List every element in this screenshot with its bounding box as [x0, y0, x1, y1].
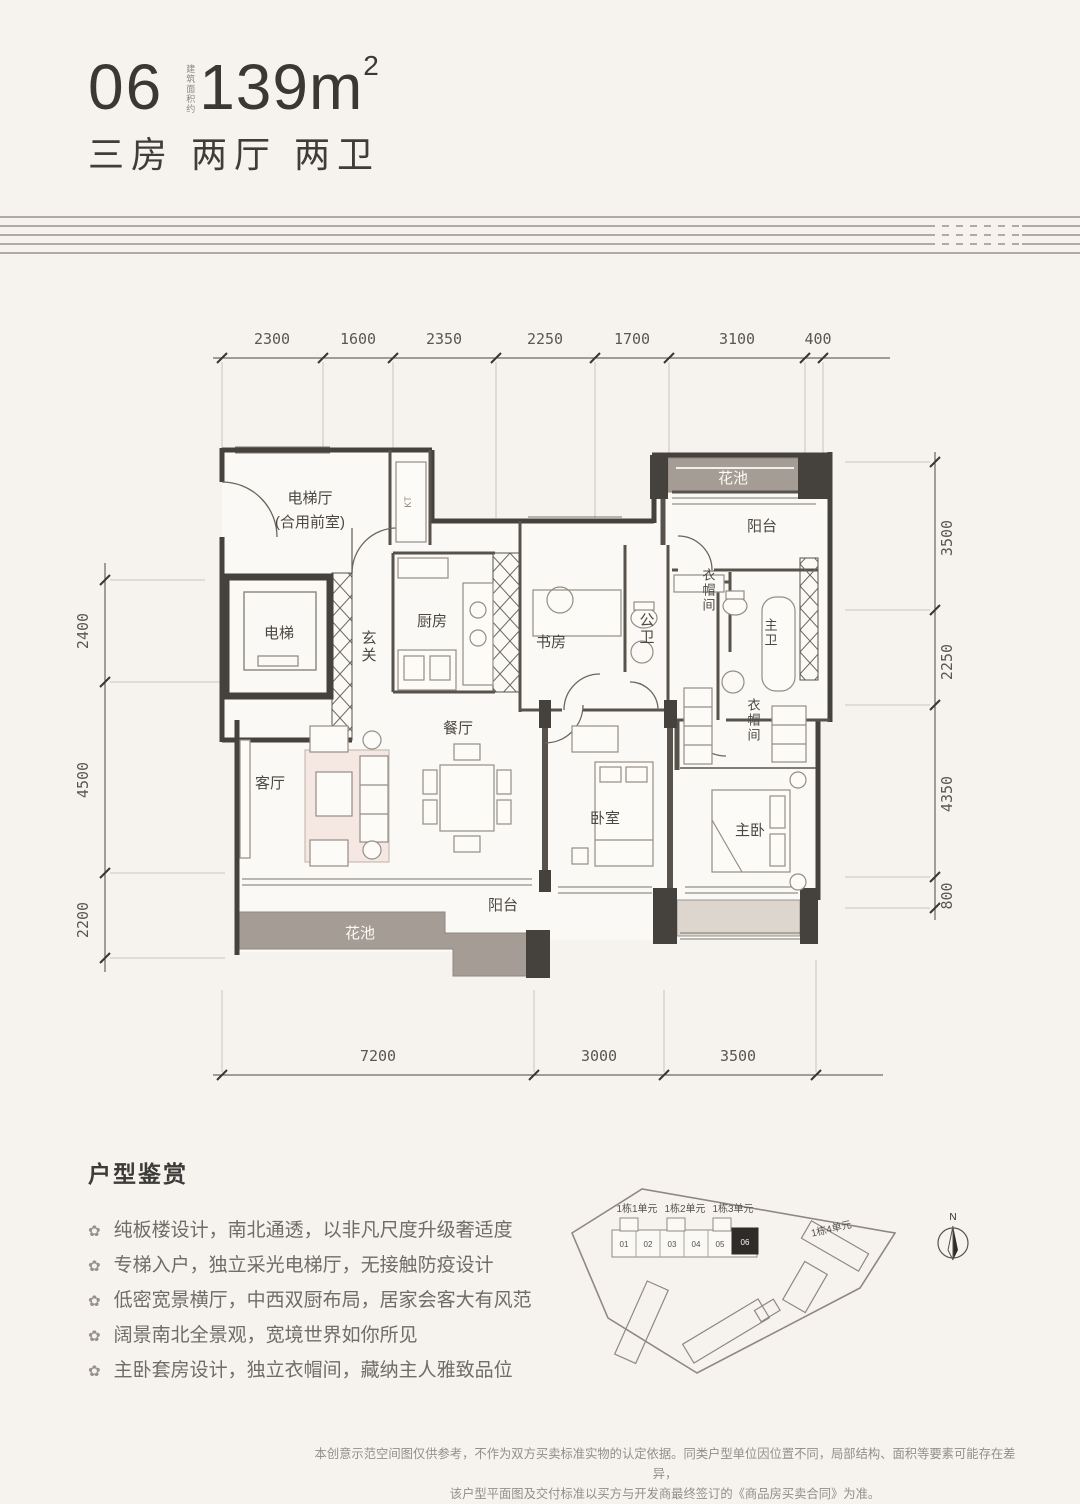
feature-text: 纯板楼设计，南北通透，以非凡尺度升级奢适度 [114, 1220, 513, 1241]
unit-01: 01 [620, 1240, 629, 1249]
room-entry: 玄关 [360, 630, 377, 664]
room-bedroom: 卧室 [590, 810, 620, 827]
site-boundary [572, 1189, 895, 1373]
features-section: 户型鉴赏 ✿纯板楼设计，南北通透，以非凡尺度升级奢适度 ✿专梯入户，独立采光电梯… [88, 1155, 532, 1388]
disclaimer-line-2: 该户型平面图及交付标准以买方与开发商最终签订的《商品房买卖合同》为准。 [305, 1484, 1025, 1504]
dim-bottom-1: 7200 [360, 1047, 396, 1065]
room-flower-top: 花池 [718, 470, 748, 487]
decorative-line-band [0, 212, 1080, 258]
compass-icon: N [938, 1212, 968, 1260]
room-master-bedroom: 主卧 [735, 822, 765, 839]
unit-05: 05 [716, 1240, 725, 1249]
dim-right-3: 4350 [938, 776, 956, 812]
feature-item: ✿纯板楼设计，南北通透，以非凡尺度升级奢适度 [88, 1213, 532, 1248]
flower-bullet-icon: ✿ [88, 1293, 101, 1310]
unit-03: 03 [668, 1240, 677, 1249]
features-list: ✿纯板楼设计，南北通透，以非凡尺度升级奢适度 ✿专梯入户，独立采光电梯厅，无接触… [88, 1213, 532, 1388]
unit-02: 02 [644, 1240, 653, 1249]
area-exponent: 2 [363, 50, 379, 82]
dim-top-6: 3100 [719, 330, 755, 348]
flower-bullet-icon: ✿ [88, 1363, 101, 1380]
dim-bottom-3: 3500 [720, 1047, 756, 1065]
room-cloakroom-master: 衣帽间 [746, 697, 761, 743]
feature-item: ✿主卧套房设计，独立衣帽间，藏纳主人雅致品位 [88, 1353, 532, 1388]
flower-bullet-icon: ✿ [88, 1258, 101, 1275]
dim-top-2: 1600 [340, 330, 376, 348]
dim-left-3: 2200 [74, 902, 92, 938]
header: 06 建筑面积约 139m 2 [88, 50, 379, 126]
layout-subtitle: 三房 两厅 两卫 [88, 126, 380, 178]
dim-left-2: 4500 [74, 762, 92, 798]
features-title: 户型鉴赏 [88, 1155, 532, 1189]
dim-bottom-2: 3000 [581, 1047, 617, 1065]
building-row [612, 1218, 758, 1257]
room-lift: 电梯 [264, 625, 294, 642]
dim-top-5: 1700 [614, 330, 650, 348]
unit-04: 04 [692, 1240, 701, 1249]
unit-number: 06 [88, 50, 163, 124]
feature-text: 低密宽景横厅，中西双厨布局，居家会客大有风范 [114, 1290, 532, 1311]
floor-plan: 2300 1600 2350 2250 1700 3100 400 2400 4… [0, 300, 1080, 1100]
room-study: 书房 [536, 634, 566, 651]
site-plan: 1栋1单元 1栋2单元 1栋3单元 1栋4单元 01 02 03 04 05 0… [540, 1170, 1000, 1430]
room-lift-lobby: 电梯厅 [287, 490, 332, 507]
flower-bullet-icon: ✿ [88, 1223, 101, 1240]
feature-item: ✿低密宽景横厅，中西双厨布局，居家会客大有风范 [88, 1283, 532, 1318]
dim-right-2: 2250 [938, 644, 956, 680]
dim-top-7: 400 [804, 330, 831, 348]
feature-text: 主卧套房设计，独立衣帽间，藏纳主人雅致品位 [114, 1360, 513, 1381]
compass-north-label: N [949, 1212, 956, 1223]
room-balcony-top: 阳台 [747, 518, 777, 535]
room-balcony-bottom: 阳台 [488, 897, 518, 914]
room-kitchen: 厨房 [417, 613, 447, 630]
feature-item: ✿专梯入户，独立采光电梯厅，无接触防疫设计 [88, 1248, 532, 1283]
room-flower-bottom: 花池 [345, 925, 375, 942]
room-guest-bath: 公卫 [638, 612, 655, 646]
dim-left-1: 2400 [74, 613, 92, 649]
room-living: 客厅 [255, 775, 285, 792]
area-value: 139m [199, 50, 363, 124]
room-master-bath: 主卫 [763, 618, 778, 648]
flower-bullet-icon: ✿ [88, 1328, 101, 1345]
dim-right-4: 800 [938, 882, 956, 909]
building-label-2: 1栋2单元 [664, 1202, 705, 1215]
room-kt: KT [403, 496, 413, 508]
flyer-page: { "header": { "unit_number": "06", "area… [0, 0, 1080, 1500]
feature-text: 阔景南北全景观，宽境世界如你所见 [114, 1325, 418, 1346]
dim-top-1: 2300 [254, 330, 290, 348]
building-label-1: 1栋1单元 [616, 1202, 657, 1215]
room-lift-lobby-note: (合用前室) [275, 514, 345, 531]
building-label-4: 1栋4单元 [810, 1218, 853, 1240]
feature-text: 专梯入户，独立采光电梯厅，无接触防疫设计 [114, 1255, 494, 1276]
area-prefix-note: 建筑面积约 [185, 64, 195, 126]
dim-top-3: 2350 [426, 330, 462, 348]
unit-06-highlighted: 06 [741, 1238, 750, 1247]
room-cloakroom-top: 衣帽间 [701, 567, 716, 613]
disclaimer-line-1: 本创意示范空间图仅供参考，不作为双方买卖标准实物的认定依据。同类户型单位因位置不… [305, 1444, 1025, 1484]
building-label-3: 1栋3单元 [712, 1202, 753, 1215]
room-dining: 餐厅 [443, 720, 473, 737]
feature-item: ✿阔景南北全景观，宽境世界如你所见 [88, 1318, 532, 1353]
dim-right-1: 3500 [938, 520, 956, 556]
disclaimer: 本创意示范空间图仅供参考，不作为双方买卖标准实物的认定依据。同类户型单位因位置不… [305, 1444, 1025, 1504]
dim-top-4: 2250 [527, 330, 563, 348]
